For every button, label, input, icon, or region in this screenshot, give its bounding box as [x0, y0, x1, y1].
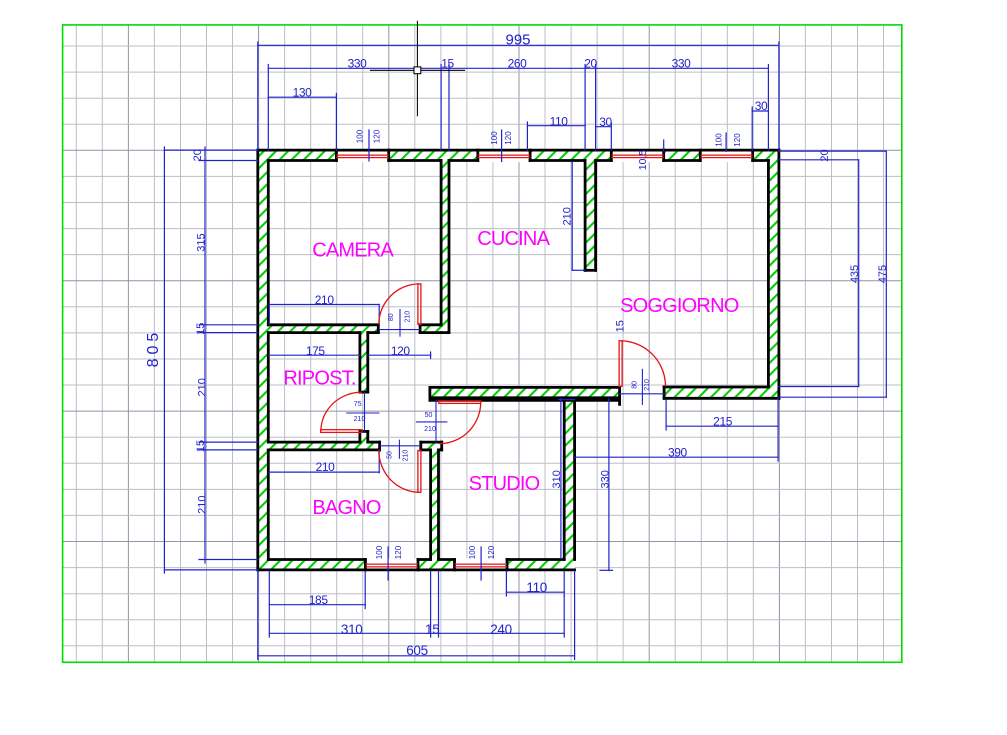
svg-text:50: 50 [387, 451, 394, 459]
svg-text:15: 15 [425, 622, 439, 637]
svg-text:310: 310 [341, 622, 363, 637]
svg-text:315: 315 [196, 233, 208, 251]
svg-text:120: 120 [487, 545, 496, 559]
svg-text:100: 100 [468, 545, 477, 559]
svg-text:210: 210 [424, 426, 436, 433]
svg-text:210: 210 [197, 496, 209, 514]
svg-text:15: 15 [195, 323, 207, 335]
svg-text:BAGNO: BAGNO [312, 497, 380, 519]
svg-text:CUCINA: CUCINA [477, 228, 550, 250]
svg-text:100: 100 [375, 545, 384, 559]
svg-text:20: 20 [584, 57, 597, 71]
svg-text:130: 130 [293, 86, 313, 100]
svg-text:100: 100 [715, 133, 724, 147]
svg-text:20: 20 [819, 149, 831, 161]
svg-text:210: 210 [316, 460, 336, 474]
svg-text:175: 175 [306, 344, 326, 358]
svg-text:260: 260 [508, 57, 528, 71]
svg-text:210: 210 [197, 378, 209, 396]
svg-text:10,5: 10,5 [637, 150, 649, 171]
svg-text:20: 20 [192, 149, 204, 161]
svg-text:435: 435 [849, 265, 861, 283]
svg-text:STUDIO: STUDIO [469, 473, 540, 495]
svg-text:605: 605 [406, 643, 428, 658]
svg-text:210: 210 [644, 379, 651, 391]
svg-text:80: 80 [388, 313, 395, 321]
svg-text:120: 120 [733, 133, 742, 147]
svg-text:120: 120 [373, 129, 382, 143]
svg-text:SOGGIORNO: SOGGIORNO [620, 295, 739, 317]
svg-text:310: 310 [551, 470, 563, 488]
svg-text:805: 805 [145, 329, 162, 368]
svg-text:15: 15 [441, 57, 454, 71]
svg-text:15: 15 [195, 440, 207, 452]
svg-text:110: 110 [526, 580, 547, 595]
svg-text:240: 240 [490, 622, 512, 637]
svg-text:120: 120 [391, 344, 411, 358]
svg-text:475: 475 [877, 265, 889, 283]
svg-text:330: 330 [599, 470, 611, 488]
svg-text:210: 210 [403, 450, 410, 462]
svg-text:15: 15 [615, 320, 627, 332]
svg-text:330: 330 [348, 57, 368, 71]
svg-text:100: 100 [356, 129, 365, 143]
svg-text:210: 210 [315, 293, 335, 307]
svg-text:RIPOST.: RIPOST. [283, 367, 355, 389]
svg-text:120: 120 [504, 131, 513, 145]
svg-text:CAMERA: CAMERA [312, 239, 394, 261]
svg-text:210: 210 [562, 207, 574, 225]
svg-text:330: 330 [672, 57, 692, 71]
svg-text:390: 390 [668, 446, 688, 460]
svg-text:110: 110 [550, 114, 569, 128]
svg-text:30: 30 [599, 115, 612, 129]
svg-text:100: 100 [490, 131, 499, 145]
svg-text:185: 185 [309, 593, 329, 607]
svg-text:50: 50 [425, 412, 433, 419]
svg-text:80: 80 [632, 381, 639, 389]
svg-text:210: 210 [354, 416, 366, 423]
svg-text:215: 215 [713, 415, 733, 429]
svg-text:120: 120 [394, 545, 403, 559]
svg-text:995: 995 [505, 32, 530, 49]
svg-text:210: 210 [405, 311, 412, 323]
svg-text:75: 75 [354, 401, 362, 408]
svg-text:30: 30 [755, 99, 768, 113]
